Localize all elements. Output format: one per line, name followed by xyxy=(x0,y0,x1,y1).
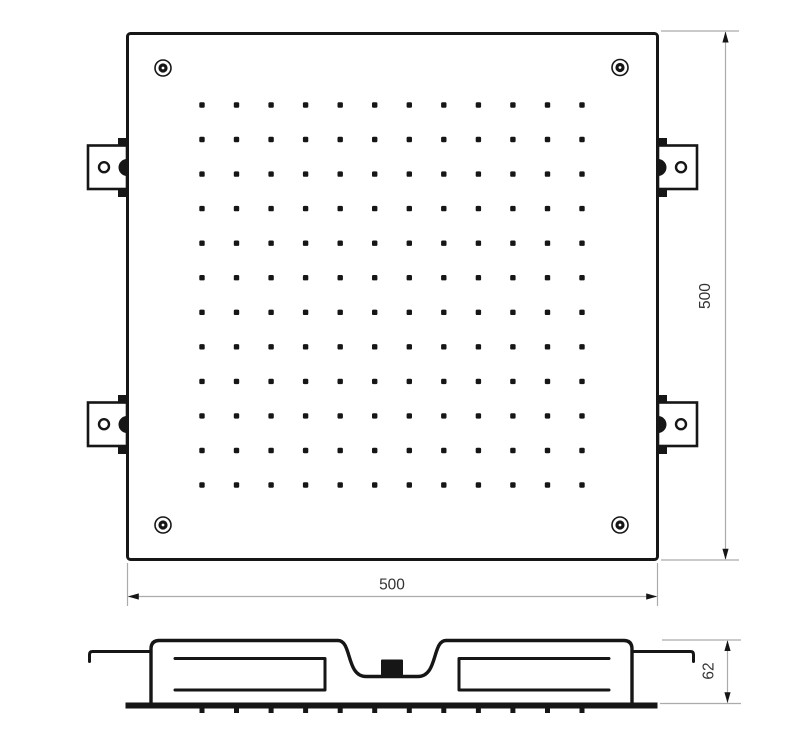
nozzle-dot xyxy=(234,171,239,176)
depth-dimension: 62 xyxy=(660,640,741,704)
nozzle-dot xyxy=(338,275,343,280)
nozzle-dot xyxy=(268,275,273,280)
nozzle-dot xyxy=(234,275,239,280)
nozzle-dot xyxy=(407,137,412,142)
nozzle-tick xyxy=(580,709,585,714)
nozzle-dot xyxy=(476,413,481,418)
nozzle-dot xyxy=(234,448,239,453)
nozzle-dot xyxy=(510,241,515,246)
nozzle-dot xyxy=(234,241,239,246)
nozzle-dot xyxy=(199,102,204,107)
arrow-down-icon xyxy=(724,692,730,703)
nozzle-dot xyxy=(476,379,481,384)
nozzle-dot xyxy=(545,413,550,418)
nozzle-dot xyxy=(372,171,377,176)
screw-icon xyxy=(155,60,171,76)
nozzle-dot xyxy=(303,379,308,384)
nozzle-dot xyxy=(234,482,239,487)
nozzle-tick xyxy=(303,709,308,714)
nozzle-dot xyxy=(372,448,377,453)
mounting-bracket-left-lower xyxy=(88,395,127,454)
nozzle-dot xyxy=(268,344,273,349)
nozzle-dot xyxy=(303,448,308,453)
side-left-flange xyxy=(90,652,152,662)
nozzle-dot xyxy=(338,344,343,349)
nozzle-dot xyxy=(199,448,204,453)
nozzle-dot xyxy=(372,482,377,487)
nozzle-dot xyxy=(338,102,343,107)
nozzle-dot xyxy=(303,413,308,418)
nozzle-dot xyxy=(199,482,204,487)
nozzle-dot xyxy=(234,206,239,211)
nozzle-dot xyxy=(199,379,204,384)
nozzle-dot xyxy=(545,137,550,142)
nozzle-dot xyxy=(199,206,204,211)
nozzle-dot xyxy=(441,448,446,453)
nozzle-dot xyxy=(268,482,273,487)
nozzle-dot xyxy=(268,310,273,315)
depth-dimension-label: 62 xyxy=(701,662,718,679)
nozzle-dot xyxy=(303,275,308,280)
nozzle-dot xyxy=(372,413,377,418)
nozzle-tick xyxy=(441,709,446,714)
nozzle-dot xyxy=(510,482,515,487)
nozzle-dot xyxy=(441,275,446,280)
height-dimension: 500 xyxy=(661,31,739,560)
nozzle-dot xyxy=(579,413,584,418)
nozzle-dot xyxy=(372,275,377,280)
nozzle-dot xyxy=(303,241,308,246)
arrow-left-icon xyxy=(128,593,139,599)
nozzle-dot xyxy=(476,448,481,453)
nozzle-dot xyxy=(441,241,446,246)
side-view: 62 xyxy=(90,640,742,713)
nozzle-dot xyxy=(199,310,204,315)
nozzle-dot xyxy=(199,241,204,246)
nozzle-dot xyxy=(510,310,515,315)
nozzle-dot xyxy=(545,206,550,211)
nozzle-dot xyxy=(407,344,412,349)
nozzle-dot xyxy=(338,413,343,418)
nozzle-dot xyxy=(407,102,412,107)
nozzle-tick xyxy=(338,709,343,714)
nozzle-dot xyxy=(545,310,550,315)
nozzle-dot xyxy=(407,171,412,176)
nozzle-dot xyxy=(372,206,377,211)
nozzle-dot xyxy=(579,344,584,349)
nozzle-dot xyxy=(510,413,515,418)
arrow-up-icon xyxy=(724,640,730,651)
nozzle-dot xyxy=(338,482,343,487)
nozzle-dot xyxy=(338,379,343,384)
nozzle-dot xyxy=(303,102,308,107)
nozzle-dot xyxy=(441,482,446,487)
nozzle-dot xyxy=(199,137,204,142)
screw-icon xyxy=(155,517,171,533)
nozzle-dot xyxy=(268,448,273,453)
nozzle-dot xyxy=(510,206,515,211)
nozzle-dot xyxy=(510,137,515,142)
arrow-up-icon xyxy=(722,32,728,43)
nozzle-dot xyxy=(579,102,584,107)
nozzle-dot xyxy=(338,137,343,142)
nozzle-tick xyxy=(234,709,239,714)
water-inlet xyxy=(381,660,403,678)
nozzle-dot xyxy=(441,137,446,142)
nozzle-tick xyxy=(545,709,550,714)
nozzle-dot xyxy=(199,171,204,176)
nozzle-dot xyxy=(268,171,273,176)
width-dimension: 500 xyxy=(128,563,658,606)
nozzle-dot xyxy=(407,241,412,246)
nozzle-dot xyxy=(199,413,204,418)
showerhead-panel xyxy=(128,34,658,560)
nozzle-dot xyxy=(234,102,239,107)
nozzle-dot xyxy=(268,379,273,384)
drawing-canvas: 500 500 xyxy=(0,0,800,737)
nozzle-tick xyxy=(476,709,481,714)
nozzle-dot xyxy=(510,102,515,107)
nozzle-dot xyxy=(579,137,584,142)
nozzle-dot xyxy=(476,206,481,211)
nozzle-dot xyxy=(234,310,239,315)
nozzle-dot xyxy=(303,310,308,315)
nozzle-dot xyxy=(407,310,412,315)
nozzle-dot xyxy=(268,413,273,418)
nozzle-dot xyxy=(579,379,584,384)
nozzle-dot xyxy=(338,310,343,315)
nozzle-dot xyxy=(303,344,308,349)
nozzle-dot xyxy=(338,206,343,211)
nozzle-dot xyxy=(303,137,308,142)
nozzle-dot xyxy=(303,482,308,487)
nozzle-dot xyxy=(476,310,481,315)
nozzle-dot xyxy=(476,171,481,176)
nozzle-dot xyxy=(579,448,584,453)
nozzle-dot xyxy=(476,275,481,280)
nozzle-dot xyxy=(579,241,584,246)
nozzle-dot xyxy=(441,310,446,315)
nozzle-dot xyxy=(407,482,412,487)
nozzle-dot xyxy=(476,137,481,142)
screw-icon xyxy=(612,60,628,76)
nozzle-dot xyxy=(545,171,550,176)
technical-drawing-svg: 500 500 xyxy=(0,0,800,737)
nozzle-tick xyxy=(510,709,515,714)
nozzle-dot xyxy=(234,379,239,384)
nozzle-dot xyxy=(441,379,446,384)
side-nozzle-ticks xyxy=(200,709,585,714)
nozzle-dot xyxy=(510,171,515,176)
mounting-bracket-left-upper xyxy=(88,138,127,197)
nozzle-dot xyxy=(545,448,550,453)
nozzle-dot xyxy=(338,448,343,453)
nozzle-dot xyxy=(579,206,584,211)
nozzle-dot xyxy=(545,275,550,280)
nozzle-dot xyxy=(268,206,273,211)
nozzle-dot xyxy=(407,275,412,280)
height-dimension-label: 500 xyxy=(697,283,714,309)
side-right-flange xyxy=(632,652,694,662)
nozzle-dot xyxy=(476,344,481,349)
mounting-bracket-right-upper xyxy=(658,138,697,197)
nozzle-dot xyxy=(476,241,481,246)
nozzle-dot xyxy=(372,344,377,349)
nozzle-dot xyxy=(579,310,584,315)
nozzle-dot xyxy=(476,102,481,107)
nozzle-dot xyxy=(234,344,239,349)
nozzle-dot xyxy=(441,102,446,107)
nozzle-dot xyxy=(510,275,515,280)
nozzle-tick xyxy=(200,709,205,714)
arrow-right-icon xyxy=(646,593,657,599)
nozzle-dot xyxy=(579,171,584,176)
nozzle-dot xyxy=(441,171,446,176)
nozzle-dot xyxy=(407,413,412,418)
nozzle-dot xyxy=(199,344,204,349)
side-slot-left xyxy=(175,659,325,691)
nozzle-dot xyxy=(510,448,515,453)
nozzle-dot xyxy=(510,379,515,384)
nozzle-dot xyxy=(407,379,412,384)
nozzle-tick xyxy=(372,709,377,714)
mounting-bracket-right-lower xyxy=(658,395,697,454)
nozzle-dot xyxy=(268,241,273,246)
nozzle-dot xyxy=(372,137,377,142)
top-view: 500 500 xyxy=(88,31,739,606)
nozzle-dot xyxy=(441,206,446,211)
nozzle-dot xyxy=(579,482,584,487)
nozzle-dot xyxy=(268,102,273,107)
side-slot-right xyxy=(459,659,609,691)
nozzle-dot xyxy=(441,344,446,349)
nozzle-dot xyxy=(268,137,273,142)
nozzle-dot xyxy=(372,241,377,246)
nozzle-dot xyxy=(441,413,446,418)
nozzle-dot xyxy=(338,241,343,246)
nozzle-dot xyxy=(545,379,550,384)
side-bottom-plate xyxy=(126,703,658,709)
nozzle-dot xyxy=(545,344,550,349)
screw-icon xyxy=(612,517,628,533)
nozzle-dot xyxy=(234,137,239,142)
arrow-down-icon xyxy=(722,549,728,560)
nozzle-dot xyxy=(234,413,239,418)
nozzle-dot xyxy=(545,482,550,487)
nozzle-dot xyxy=(476,482,481,487)
nozzle-dot xyxy=(372,102,377,107)
nozzle-dot xyxy=(545,241,550,246)
nozzle-dot xyxy=(199,275,204,280)
nozzle-dot xyxy=(338,171,343,176)
nozzle-dot xyxy=(510,344,515,349)
nozzle-dot xyxy=(372,379,377,384)
nozzle-dot xyxy=(372,310,377,315)
nozzle-tick xyxy=(407,709,412,714)
nozzle-dot xyxy=(407,206,412,211)
nozzle-dot xyxy=(303,206,308,211)
nozzle-dot xyxy=(579,275,584,280)
nozzle-dot xyxy=(303,171,308,176)
width-dimension-label: 500 xyxy=(379,577,405,594)
nozzle-tick xyxy=(269,709,274,714)
nozzle-dot xyxy=(545,102,550,107)
nozzle-dot xyxy=(407,448,412,453)
